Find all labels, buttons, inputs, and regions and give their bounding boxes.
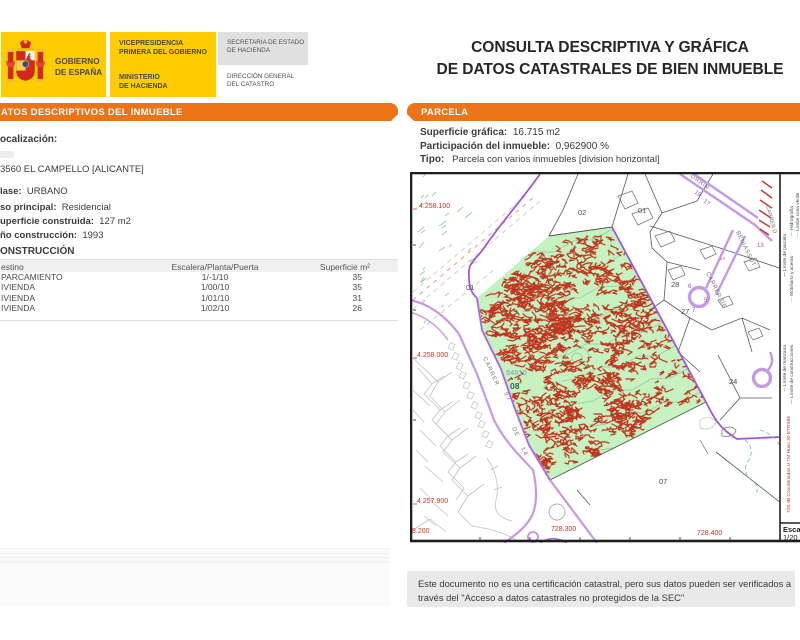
svg-text:— Límite de manzana: — Límite de manzana [782,345,788,392]
svg-text:— Límite de parcela: — Límite de parcela [782,234,788,277]
svg-text:13: 13 [757,243,764,249]
svg-text:01: 01 [638,206,646,215]
svg-text:02: 02 [578,208,586,217]
svg-text:07: 07 [659,477,667,486]
svg-text:84810: 84810 [506,368,527,377]
svg-text:7: 7 [692,308,696,314]
svg-text:4.257.900: 4.257.900 [417,498,448,505]
svg-text:24: 24 [729,377,737,386]
svg-text:28: 28 [671,280,679,289]
svg-text:— Hidrografía: — Hidrografía [789,206,795,236]
svg-text:27: 27 [681,307,689,316]
svg-text:17: 17 [702,199,711,208]
svg-text:728.300: 728.300 [551,526,576,533]
svg-text:728.400: 728.400 [697,530,722,537]
svg-text:08: 08 [510,381,520,391]
svg-text:— Mobiliario y aceras: — Mobiliario y aceras [789,255,795,302]
svg-text:— Límite zona verde: — Límite zona verde [795,192,800,237]
svg-text:4.258.000: 4.258.000 [417,352,448,359]
svg-text:01: 01 [466,283,474,292]
svg-text:4.258.100: 4.258.100 [419,203,450,210]
svg-text:CARRER D: CARRER D [764,205,777,234]
svg-text:19: 19 [693,190,702,199]
svg-text:8.200: 8.200 [412,528,430,535]
svg-text:DE: DE [510,426,520,438]
svg-text:728.4B Coordenadas U TM Huso 3: 728.4B Coordenadas U TM Huso 30 ETRS89 [786,416,792,513]
svg-text:— Límite de construcciones: — Límite de construcciones [789,344,795,404]
